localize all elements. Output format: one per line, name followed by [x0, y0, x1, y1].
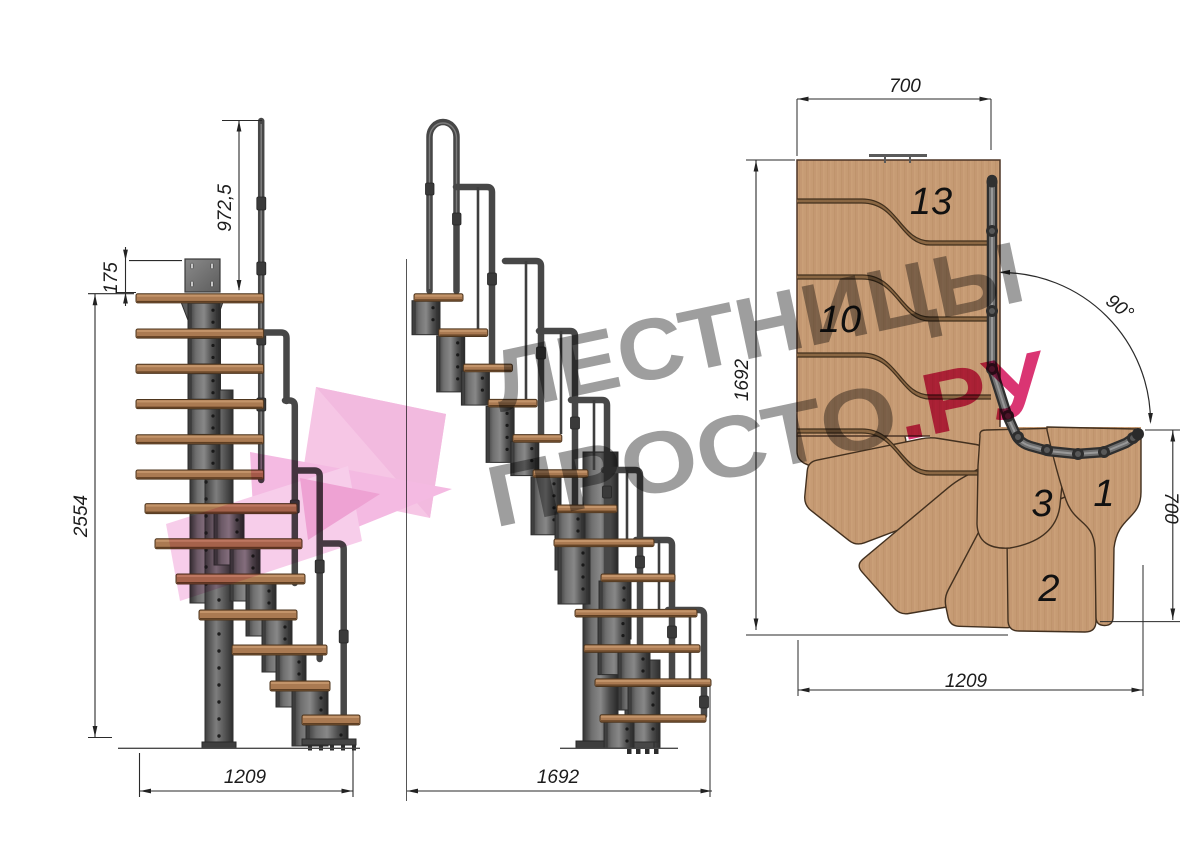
svg-text:972,5: 972,5 [215, 184, 236, 232]
svg-text:2554: 2554 [71, 495, 92, 538]
svg-text:1692: 1692 [537, 767, 580, 788]
svg-text:13: 13 [910, 181, 952, 223]
svg-text:175: 175 [101, 262, 122, 294]
svg-text:1209: 1209 [224, 767, 267, 788]
svg-text:1: 1 [1093, 473, 1114, 515]
svg-text:1209: 1209 [945, 671, 988, 692]
svg-text:2: 2 [1037, 568, 1059, 610]
svg-text:700: 700 [889, 76, 921, 97]
svg-text:700: 700 [1160, 492, 1181, 524]
svg-text:3: 3 [1031, 483, 1052, 525]
